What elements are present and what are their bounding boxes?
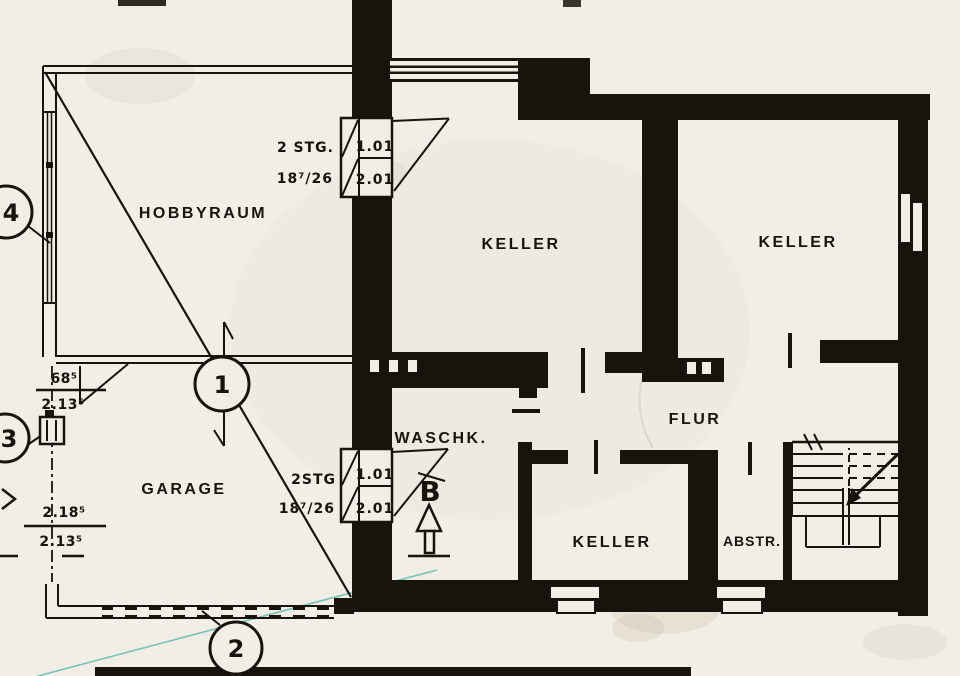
room-label-garage: GARAGE [141, 481, 226, 498]
door-leaf-stroke [581, 348, 585, 393]
flue-notch [702, 362, 711, 374]
window-tick [46, 162, 53, 168]
upper-stair-level-top: 1.01 [356, 139, 395, 155]
flue-notch [370, 360, 379, 372]
garage-door-strip-hatch [102, 606, 334, 618]
paper-stain [85, 48, 195, 104]
detail-number-2: 2 [228, 635, 245, 663]
east-wall [898, 94, 928, 616]
door-leaf-stroke [748, 442, 752, 475]
keller-flur-wall [820, 340, 898, 363]
south-window-2 [716, 586, 766, 599]
detail-number-3: 3 [1, 425, 18, 453]
section-arrow-shaft [425, 531, 434, 553]
center-wall-foot [678, 358, 724, 382]
top-wall-window-line [390, 66, 518, 69]
upper-stair-ratio-label: 18⁷/26 [277, 171, 333, 187]
lower-stair-level-bottom: 2.01 [356, 501, 395, 517]
keller-bottom-top-wall [620, 450, 690, 464]
south-wall [352, 580, 928, 612]
flue-notch [389, 360, 398, 372]
dim-offset-top: 68⁵ [50, 371, 77, 387]
door-leaf-stroke [788, 333, 792, 368]
top-wall-window-line [390, 72, 518, 75]
room-label-hobbyraum: HOBBYRAUM [139, 205, 267, 222]
south-window-1 [557, 600, 595, 613]
dim-garage-top: 2.18⁵ [42, 505, 85, 521]
top-wall-corner-block [518, 58, 590, 120]
stair-west-wall [783, 442, 792, 588]
dim-arrow-chevron [2, 489, 15, 509]
keller-bottom-top-arm [532, 450, 568, 464]
room-label-keller-top-right: KELLER [759, 234, 838, 251]
east-wall-window [913, 203, 922, 251]
room-label-waschkueche: WASCHK. [394, 430, 487, 447]
scan-edge-mark [563, 0, 581, 7]
flue-notch [687, 362, 696, 374]
lower-stair-level-top: 1.01 [356, 467, 395, 483]
upper-stair-steps-label: 2 STG. [277, 140, 334, 156]
east-wall-window [901, 194, 910, 242]
top-wall-window [390, 61, 518, 79]
door-leaf-stroke [594, 440, 598, 474]
wall-segment [605, 352, 660, 373]
flue-notch [408, 360, 417, 372]
south-window-1 [550, 586, 600, 599]
section-marker-b: B [419, 475, 440, 508]
dimension-annotations: 68⁵ 2.13⁵ 2.18⁵ 2.13⁵ [0, 371, 106, 556]
top-wall-right [586, 94, 930, 120]
dim-garage-bottom: 2.13⁵ [39, 534, 82, 550]
floor-plan-drawing: 2 STG. 18⁷/26 1.01 2.01 2STG 18⁷/26 1.01… [0, 0, 960, 676]
keller-bottom-left-wall [518, 442, 532, 588]
abst-divider-wall [688, 450, 718, 590]
center-wall [642, 94, 678, 382]
window-tick [46, 232, 53, 238]
paper-stain [863, 624, 947, 660]
room-label-abstellraum: ABSTR. [723, 533, 781, 549]
room-label-flur: FLUR [669, 411, 722, 428]
door-swing-flag [392, 119, 449, 122]
marker1-tick-barb [214, 430, 224, 446]
lower-stair-steps-label: 2STG [291, 472, 336, 488]
lower-stair-ratio-label: 18⁷/26 [279, 501, 335, 517]
wall-nib [519, 384, 537, 398]
wall-dash [512, 409, 540, 413]
scan-edge-mark [118, 0, 166, 6]
upper-stair-level-bottom: 2.01 [356, 172, 395, 188]
floor-plan-scan: 2 STG. 18⁷/26 1.01 2.01 2STG 18⁷/26 1.01… [0, 0, 960, 676]
detail-number-1: 1 [214, 371, 231, 399]
paper-stain [612, 614, 664, 642]
room-label-keller-top-left: KELLER [482, 236, 561, 253]
door-swing-flag [80, 364, 128, 404]
scan-edge-mark [95, 667, 691, 676]
south-window-2 [722, 600, 762, 613]
main-staircase [792, 434, 898, 547]
wall-joint [334, 598, 354, 614]
room-label-keller-bottom: KELLER [573, 534, 652, 551]
post-symbol [40, 417, 64, 444]
detail-number-4: 4 [3, 199, 20, 227]
